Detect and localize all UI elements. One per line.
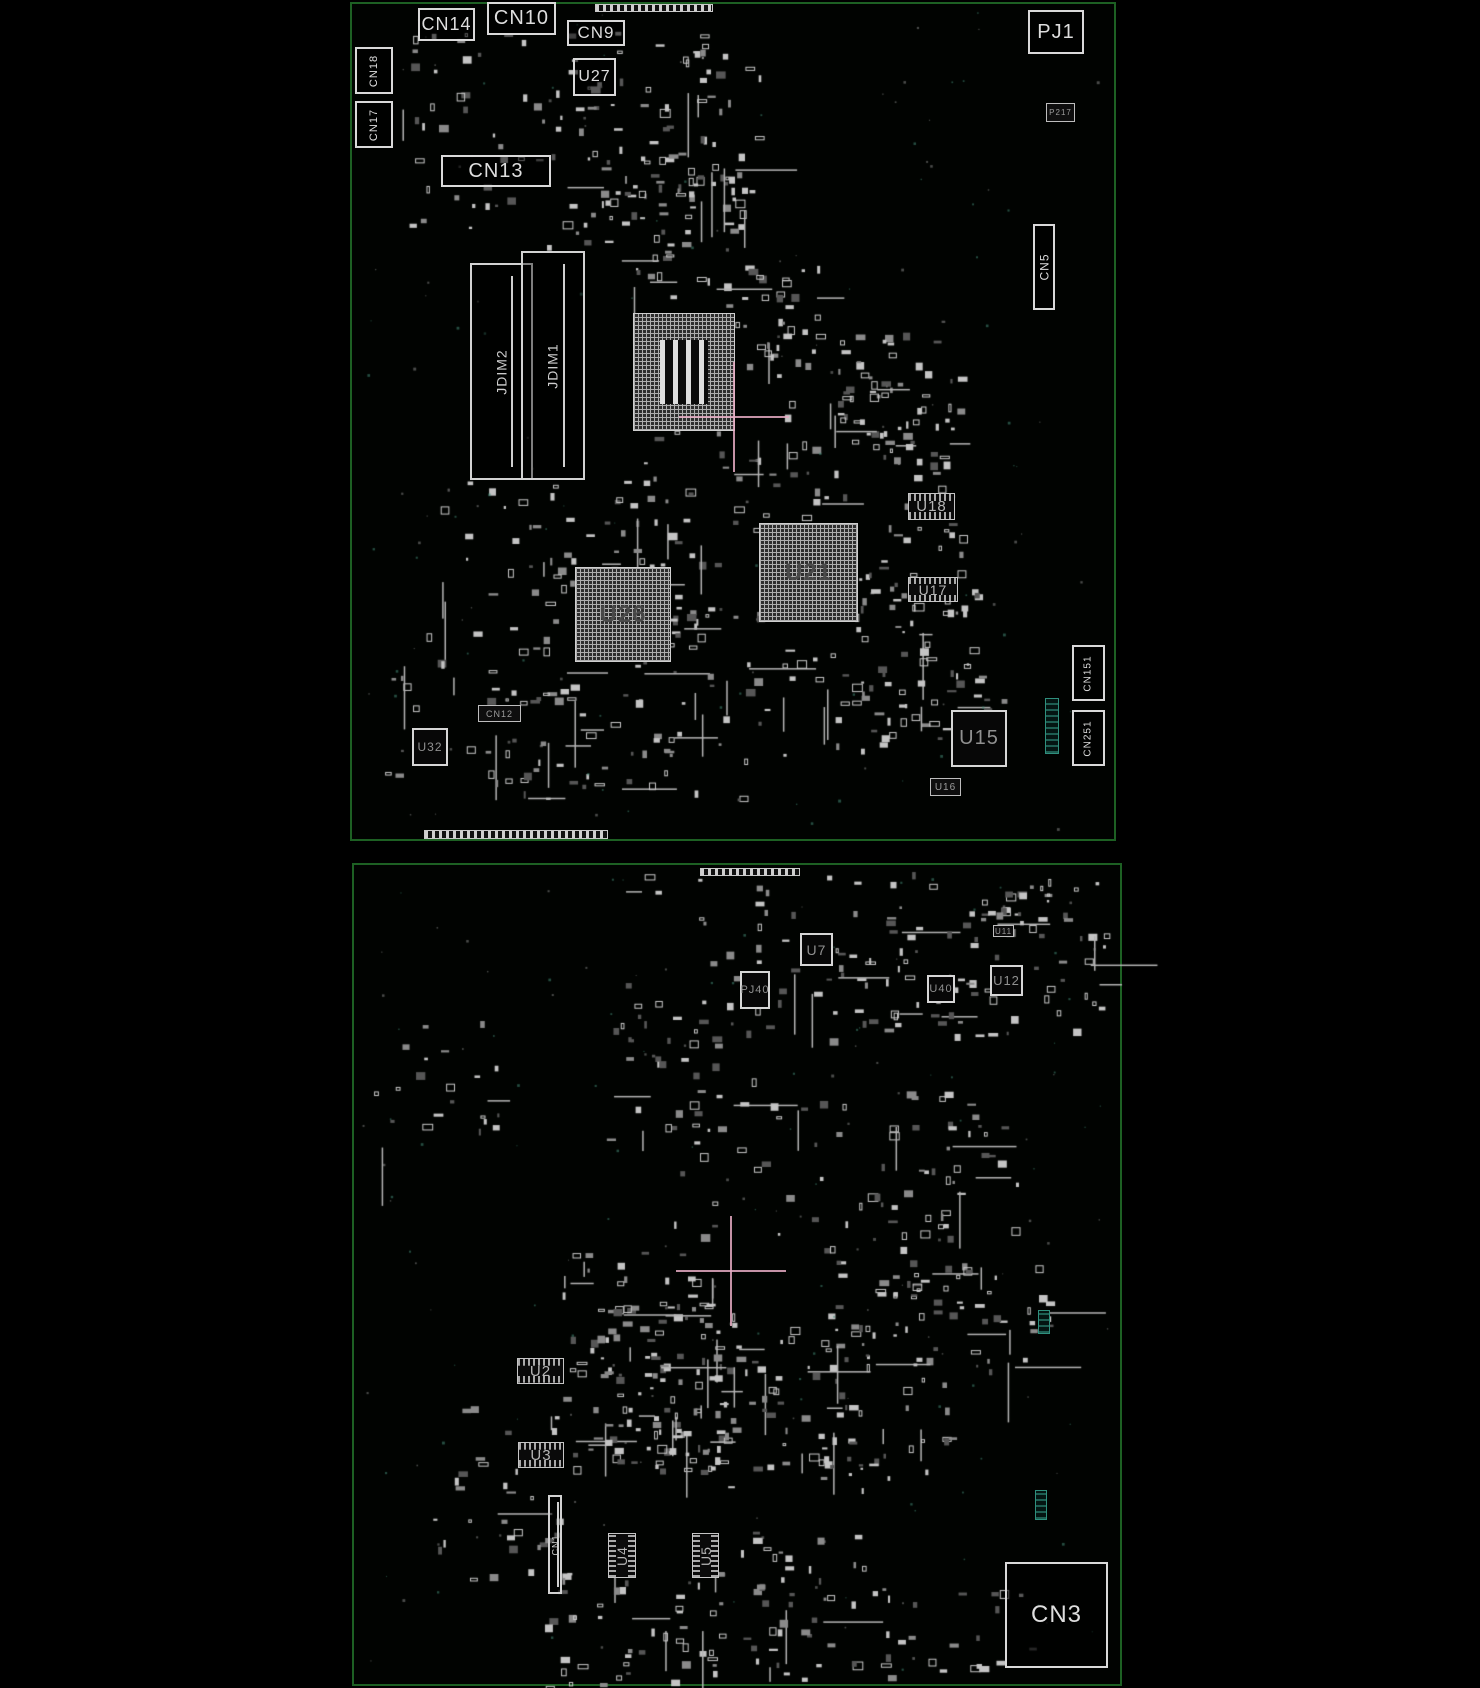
component-u11[interactable]: U11: [993, 925, 1014, 937]
edge-connector[interactable]: [424, 830, 608, 839]
component-u12[interactable]: U12: [990, 965, 1023, 996]
component-u32[interactable]: U32: [412, 728, 448, 766]
component-u2[interactable]: U2: [517, 1358, 564, 1384]
component-label: CN151: [1083, 655, 1094, 691]
component-u5[interactable]: U5: [692, 1533, 719, 1578]
component-label: CN251: [1083, 720, 1094, 756]
component-label: CN9: [577, 23, 614, 43]
component-u26[interactable]: U26: [575, 567, 671, 662]
component-label: U7: [807, 942, 827, 958]
component-label: U18: [916, 498, 947, 515]
component-label: JDIM1: [545, 343, 561, 388]
component-label: U2: [530, 1363, 551, 1380]
component-cn3[interactable]: CN3: [1005, 1562, 1108, 1668]
teal-connector[interactable]: [1035, 1490, 1047, 1520]
component-label: U40: [929, 983, 952, 995]
component-cn251[interactable]: CN251: [1072, 710, 1105, 766]
component-label: PJ40: [740, 984, 769, 996]
teal-connector[interactable]: [1045, 698, 1059, 754]
edge-connector[interactable]: [595, 4, 713, 12]
component-cn12[interactable]: CN12: [478, 705, 521, 722]
component-label: PJ1: [1037, 21, 1074, 44]
component-label: CN5: [1037, 253, 1051, 280]
component-cn151[interactable]: CN151: [1072, 645, 1105, 701]
component-cn13[interactable]: CN13: [441, 155, 551, 187]
slot-pin-row: [511, 276, 513, 468]
component-pj40[interactable]: PJ40: [740, 971, 770, 1009]
component-u18[interactable]: U18: [908, 493, 955, 520]
component-label: CN3: [1031, 1601, 1082, 1629]
component-u17[interactable]: U17: [908, 577, 958, 602]
component-label: P217: [1049, 108, 1072, 117]
component-label: U17: [919, 582, 948, 598]
component-label: CN1: [550, 1534, 560, 1555]
component-u27[interactable]: U27: [573, 58, 616, 96]
component-cn1[interactable]: CN1: [548, 1495, 562, 1594]
component-cn18[interactable]: CN18: [355, 47, 393, 94]
component-label: U5: [698, 1546, 714, 1566]
component-p217[interactable]: P217: [1046, 103, 1075, 122]
component-cn17[interactable]: CN17: [355, 101, 393, 148]
component-cn14[interactable]: CN14: [418, 8, 475, 41]
component-label: JDIM2: [493, 349, 509, 394]
component-label: U32: [417, 740, 442, 754]
component-label: U21: [785, 559, 832, 587]
edge-connector[interactable]: [700, 868, 800, 876]
boardview-workspace: CN14CN10CN9U27CN18CN17CN13PJ1P217CN5JDIM…: [0, 0, 1480, 1688]
component-label: U11: [995, 927, 1012, 936]
component-cn9[interactable]: CN9: [567, 20, 625, 46]
component-u16[interactable]: U16: [930, 778, 961, 796]
component-label: CN13: [468, 160, 523, 183]
component-u3[interactable]: U3: [518, 1442, 564, 1468]
teal-connector[interactable]: [1038, 1310, 1050, 1334]
slot-pin-row: [563, 264, 565, 467]
component-label: U3: [530, 1447, 551, 1464]
component-label: U15: [959, 727, 999, 750]
component-label: CN17: [368, 108, 380, 140]
component-noise-layer: [0, 0, 1480, 1688]
component-u40[interactable]: U40: [927, 975, 955, 1003]
cpu-bga[interactable]: [633, 313, 735, 431]
component-label: CN18: [368, 54, 380, 86]
component-label: CN10: [494, 7, 549, 30]
component-label: U26: [599, 601, 646, 629]
bga-pad-array: [660, 340, 708, 405]
component-label: CN12: [486, 709, 513, 719]
component-u7[interactable]: U7: [800, 933, 833, 966]
component-label: CN14: [421, 14, 471, 35]
component-pj1[interactable]: PJ1: [1028, 10, 1084, 54]
component-u15[interactable]: U15: [951, 710, 1007, 767]
crosshair-line: [730, 1216, 732, 1326]
component-label: U16: [935, 782, 956, 793]
component-cn10[interactable]: CN10: [487, 2, 556, 35]
component-label: U4: [614, 1546, 630, 1566]
crosshair-line: [733, 362, 735, 472]
component-u21[interactable]: U21: [759, 523, 858, 622]
component-label: U12: [993, 973, 1020, 988]
component-jdim1[interactable]: JDIM1: [521, 251, 585, 480]
component-u4[interactable]: U4: [608, 1533, 636, 1578]
component-cn5[interactable]: CN5: [1033, 224, 1055, 310]
component-label: U27: [578, 68, 610, 86]
